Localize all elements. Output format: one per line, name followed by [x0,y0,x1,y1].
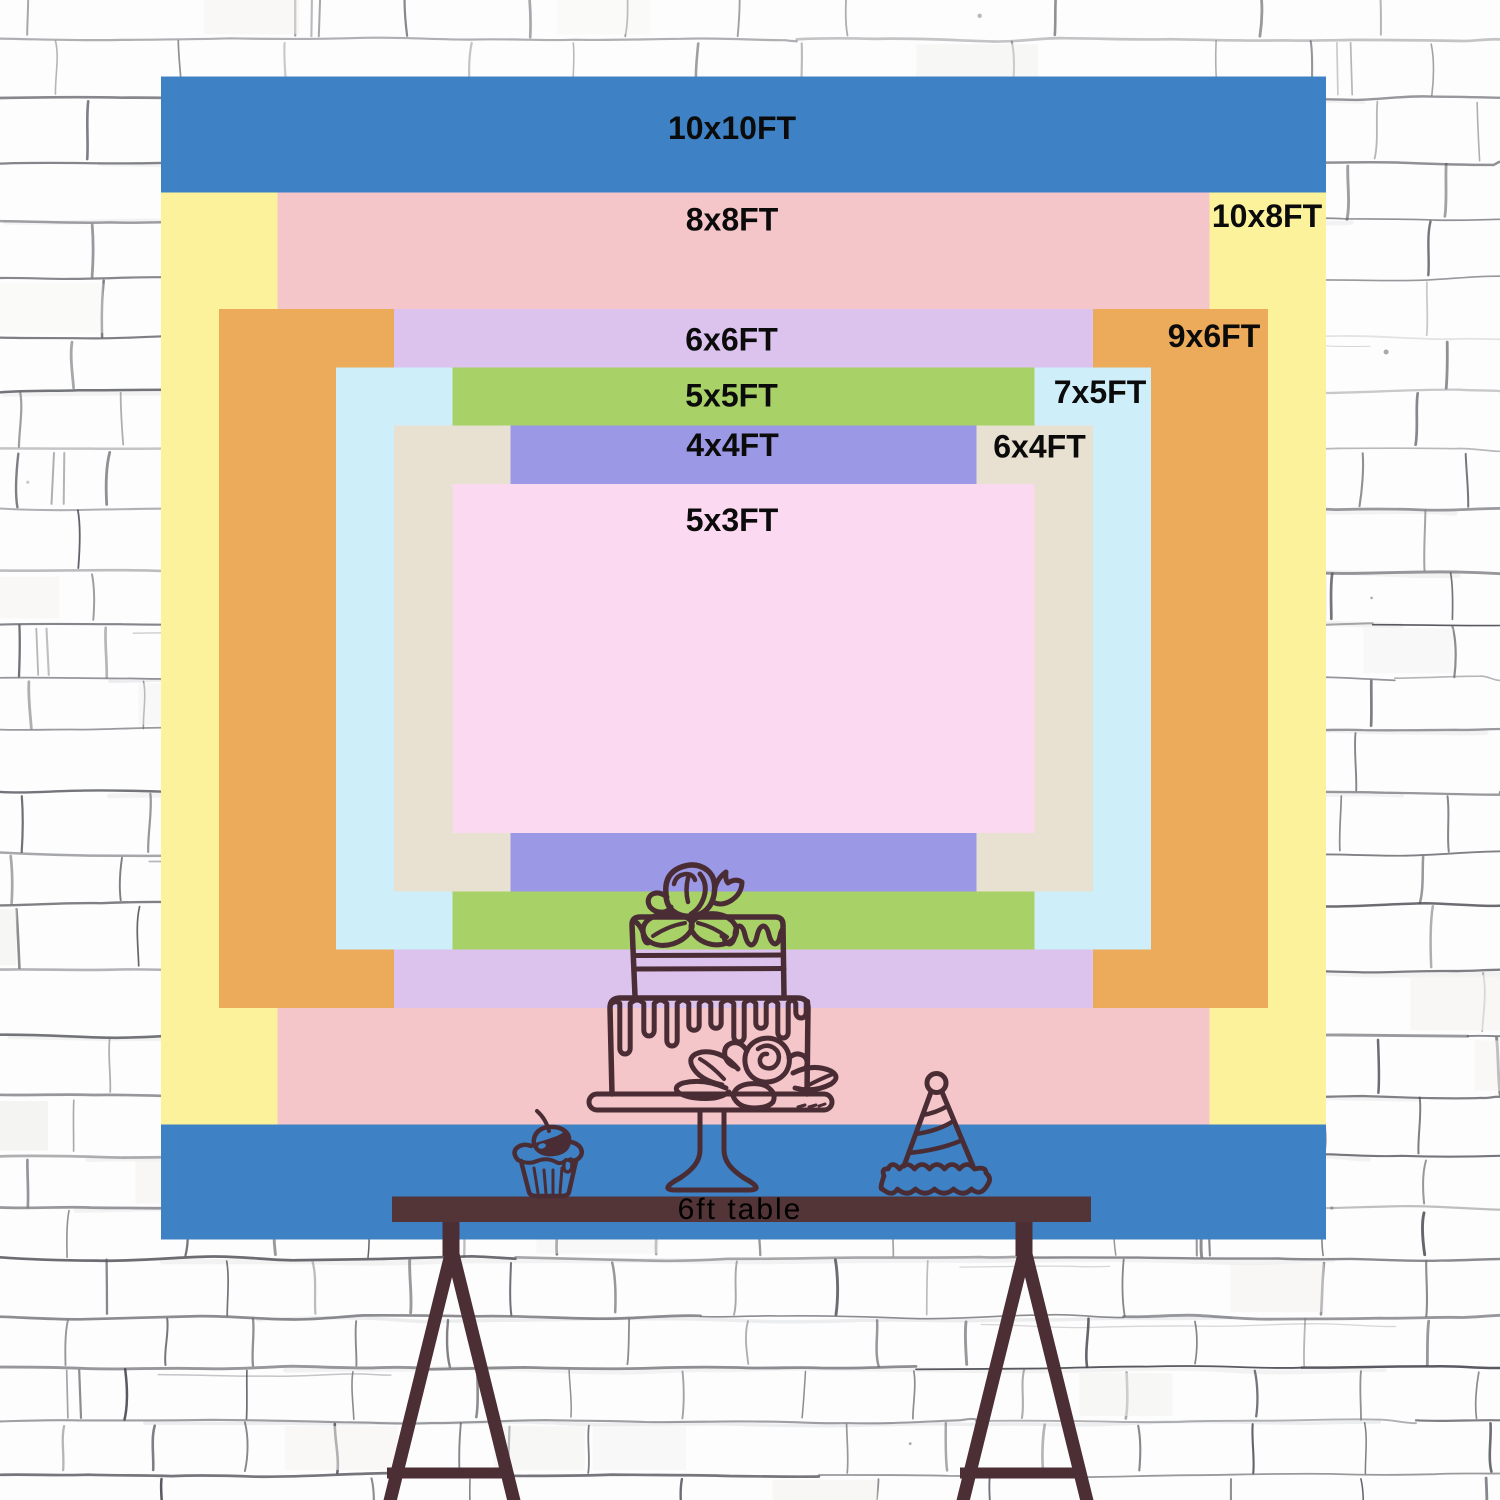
svg-text:10x10FT: 10x10FT [668,110,797,146]
svg-text:4x4FT: 4x4FT [686,427,779,463]
svg-text:8x8FT: 8x8FT [686,202,779,238]
svg-text:6x6FT: 6x6FT [685,322,778,358]
svg-text:9x6FT: 9x6FT [1168,318,1261,354]
svg-text:10x8FT: 10x8FT [1212,198,1323,234]
svg-text:5x3FT: 5x3FT [686,502,779,538]
svg-text:6x4FT: 6x4FT [993,429,1086,465]
svg-text:6ft table: 6ft table [678,1193,803,1226]
svg-text:5x5FT: 5x5FT [685,378,778,414]
svg-text:7x5FT: 7x5FT [1054,374,1147,410]
